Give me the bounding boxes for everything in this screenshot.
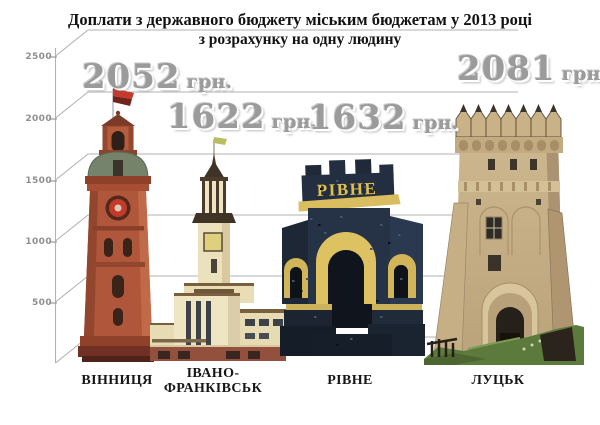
city-label-rivne: РІВНЕ	[290, 373, 410, 388]
value-label-rivne: 1632грн.	[308, 101, 458, 135]
chart-title-line2: з розрахунку на одну людину	[0, 31, 600, 49]
frankivsk-flag	[214, 137, 227, 145]
city-label-frankivsk-line2: ФРАНКІВСЬК	[143, 381, 283, 396]
chart-title-line1: Доплати з державного бюджету міським бюд…	[0, 10, 600, 30]
value-number: 1622	[167, 97, 266, 137]
ivano-frankivsk-city-hall-illustration	[148, 133, 288, 363]
value-label-lutsk: 2081грн.	[457, 52, 600, 86]
value-label-vinnytsia: 2052грн.	[82, 60, 232, 94]
value-number: 1632	[308, 98, 407, 138]
ytick-500: 500	[12, 298, 52, 308]
value-unit: грн.	[413, 112, 458, 134]
rivne-monument-text: РІВНЕ	[317, 179, 378, 200]
city-label-frankivsk: ІВАНО- ФРАНКІВСЬК	[143, 366, 283, 396]
value-unit: грн.	[187, 71, 232, 93]
value-label-frankivsk: 1622грн.	[167, 100, 317, 134]
value-number: 2052	[82, 57, 181, 97]
lutsk-parapet-merlons	[456, 104, 561, 137]
city-label-lutsk: ЛУЦЬК	[438, 373, 558, 388]
ytick-2500: 2500	[12, 52, 52, 62]
lutsk-castle-tower-illustration	[424, 103, 584, 365]
value-unit: грн.	[562, 63, 600, 85]
ytick-1500: 1500	[12, 176, 52, 186]
ytick-1000: 1000	[12, 237, 52, 247]
value-number: 2081	[457, 49, 556, 89]
frankivsk-clock	[204, 233, 222, 251]
infographic-canvas: Доплати з державного бюджету міським бюд…	[0, 0, 600, 425]
ytick-2000: 2000	[12, 114, 52, 124]
city-label-frankivsk-line1: ІВАНО-	[143, 366, 283, 381]
vinnytsia-clock	[106, 196, 131, 221]
rivne-monument-illustration: РІВНЕ	[280, 158, 425, 363]
